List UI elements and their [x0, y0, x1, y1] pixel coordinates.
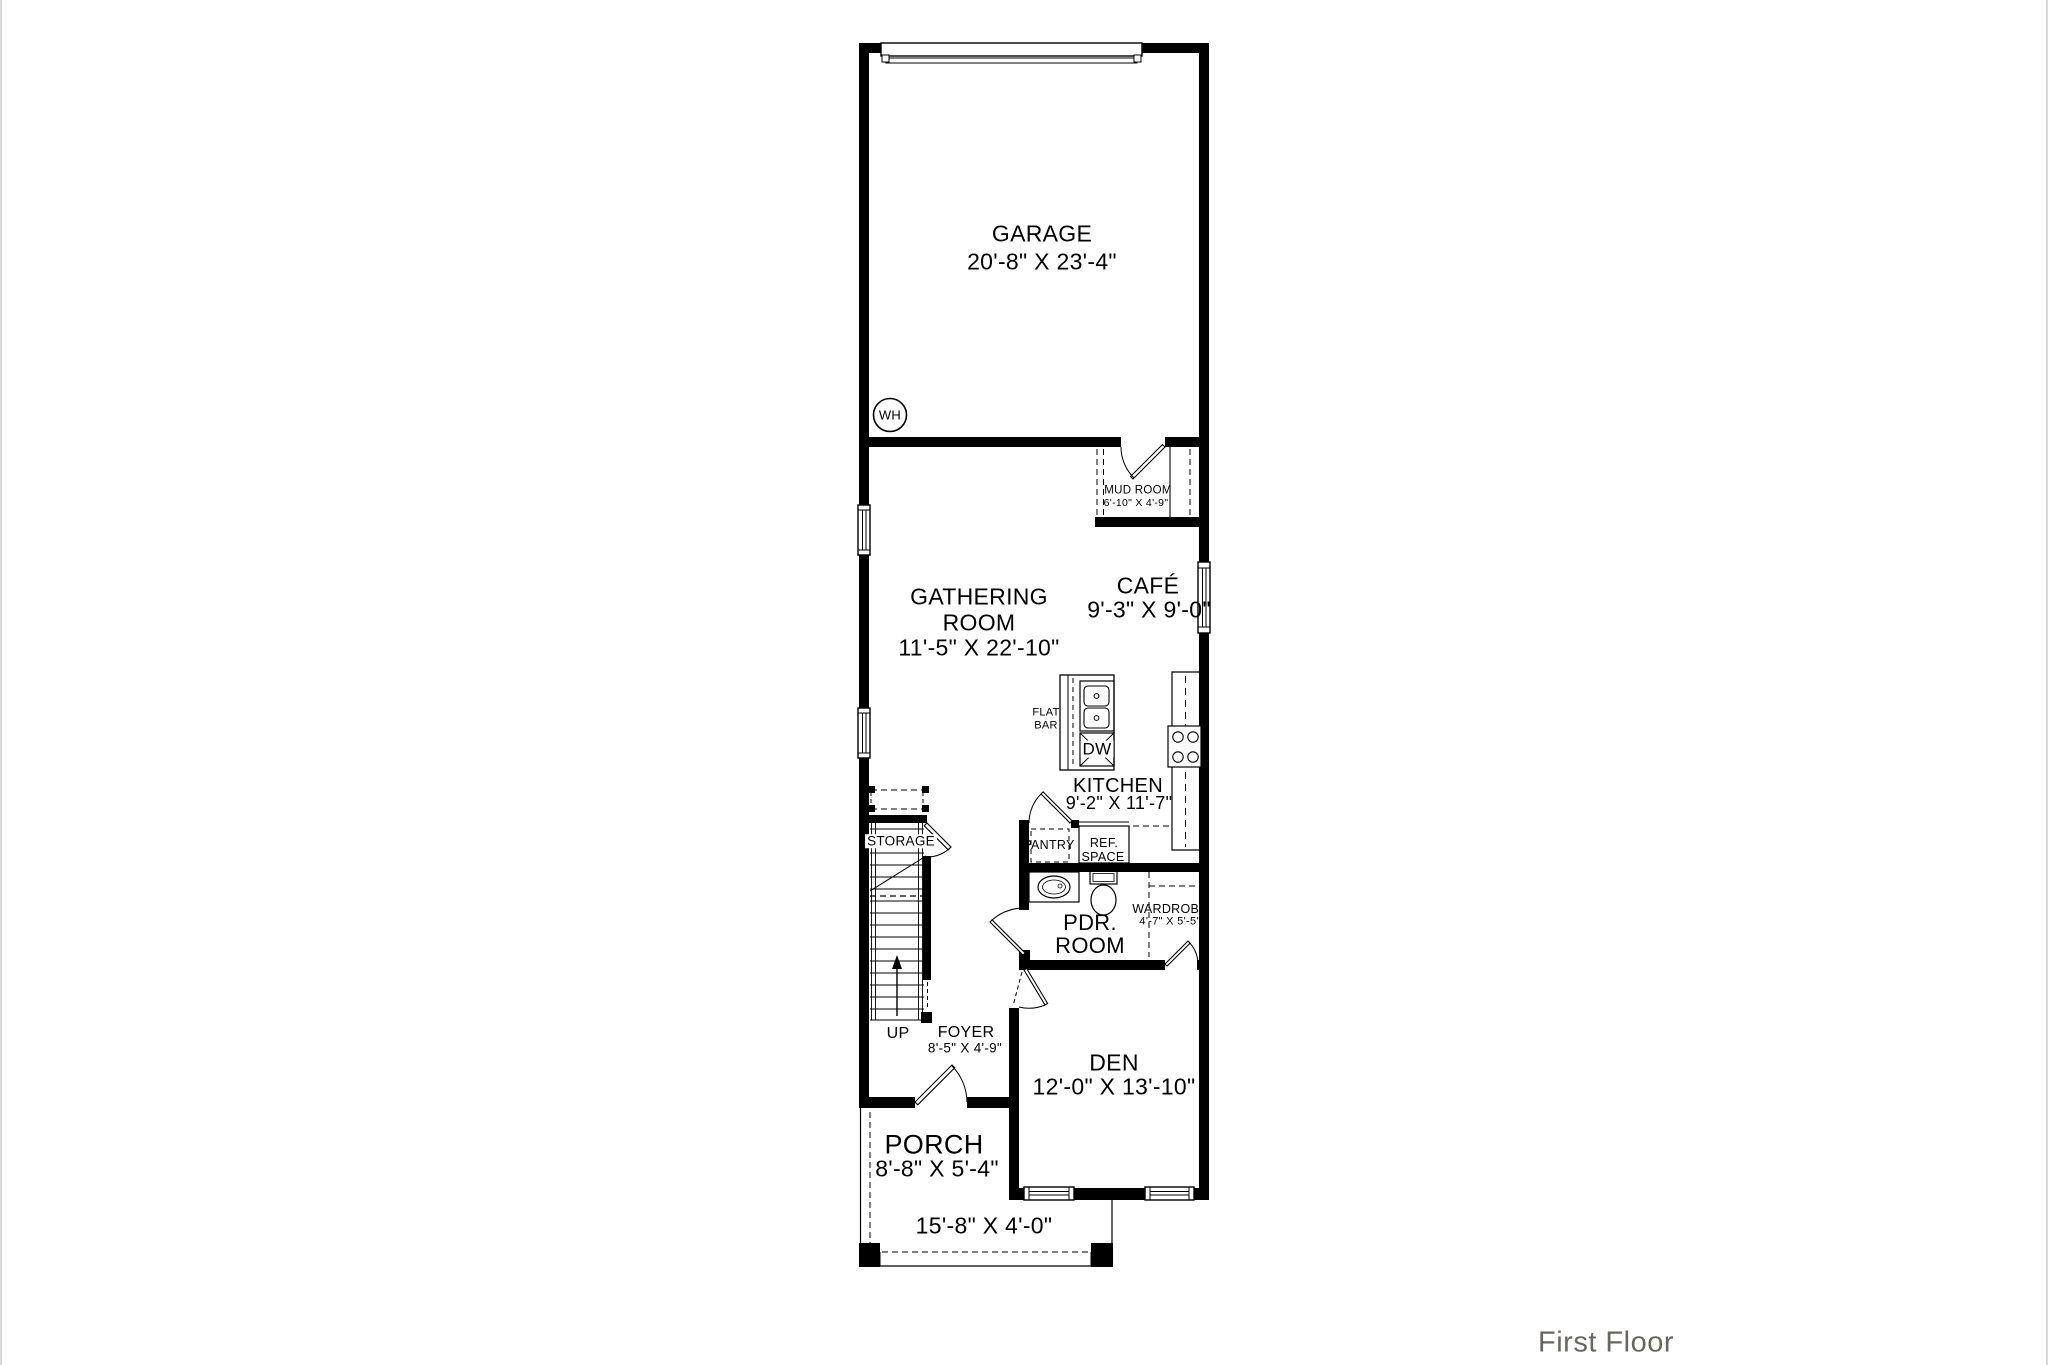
- garage-dims: 20'-8" X 23'-4": [967, 251, 1117, 274]
- stoop-dims: 15'-8" X 4'-0": [916, 1215, 1053, 1238]
- gathering-room-dims: 11'-5" X 22'-10": [898, 637, 1059, 660]
- up-label: UP: [887, 1026, 910, 1042]
- cafe-label: CAFÉ: [1117, 575, 1180, 598]
- cafe-dims: 9'-3" X 9'-0": [1087, 599, 1211, 622]
- den-dims: 12'-0" X 13'-10": [1033, 1076, 1196, 1099]
- porch-dims: 8'-8" X 5'-4": [875, 1158, 999, 1181]
- den-door: [1013, 968, 1048, 1008]
- dishwasher-label: DW: [1081, 741, 1114, 758]
- range: [1168, 726, 1201, 767]
- floor-plan-drawing: [2, 0, 2048, 1365]
- vanity-sink: [1029, 872, 1079, 902]
- foyer-label: FOYER: [938, 1025, 995, 1041]
- mud-room-label: MUD ROOM: [1104, 485, 1172, 497]
- porch-label: PORCH: [884, 1132, 983, 1159]
- water-heater-label: WH: [879, 409, 901, 422]
- garage-label: GARAGE: [992, 223, 1092, 246]
- pdr-room-label-2: ROOM: [1055, 935, 1125, 957]
- pdr-room-door: [990, 908, 1025, 955]
- garage-door: [881, 43, 1142, 63]
- kitchen-dims: 9'-2" X 11'-7": [1066, 794, 1173, 812]
- first-floor-caption: First Floor: [1538, 1329, 1674, 1358]
- pdr-room-label-1: PDR.: [1063, 912, 1117, 934]
- wardrobe-label: WARDROBE: [1132, 903, 1208, 916]
- ref-space-label-2: SPACE: [1082, 851, 1125, 864]
- front-door: [915, 1065, 967, 1105]
- wardrobe-door: [1165, 941, 1198, 966]
- flat-bar-label-2: BAR: [1034, 721, 1058, 732]
- foyer-dims: 8'-5" X 4'-9": [928, 1041, 1002, 1055]
- mud-room-dims: 6'-10" X 4'-9": [1104, 498, 1169, 509]
- mud-room-door: [1121, 445, 1165, 480]
- pantry-label: PANTRY: [1023, 839, 1074, 852]
- ref-space-label-1: REF.: [1090, 837, 1118, 850]
- toilet: [1090, 871, 1117, 915]
- den-label: DEN: [1089, 1052, 1138, 1075]
- window-left-1: [858, 505, 870, 555]
- window-den-2: [1145, 1187, 1194, 1200]
- window-den-1: [1024, 1187, 1074, 1200]
- storage-label: STORAGE: [865, 834, 937, 848]
- kitchen-fixtures: [1031, 672, 1201, 863]
- gathering-room-label-2: ROOM: [943, 612, 1016, 635]
- floor-plan-page: GARAGE 20'-8" X 23'-4" GATHERING ROOM 11…: [0, 0, 2048, 1365]
- stairs-overhead: [868, 786, 929, 812]
- gathering-room-label-1: GATHERING: [910, 586, 1048, 609]
- wardrobe-dims: 4'-7" X 5'-5": [1139, 917, 1200, 928]
- flat-bar-label-1: FLAT: [1032, 708, 1059, 719]
- window-left-2: [858, 708, 870, 758]
